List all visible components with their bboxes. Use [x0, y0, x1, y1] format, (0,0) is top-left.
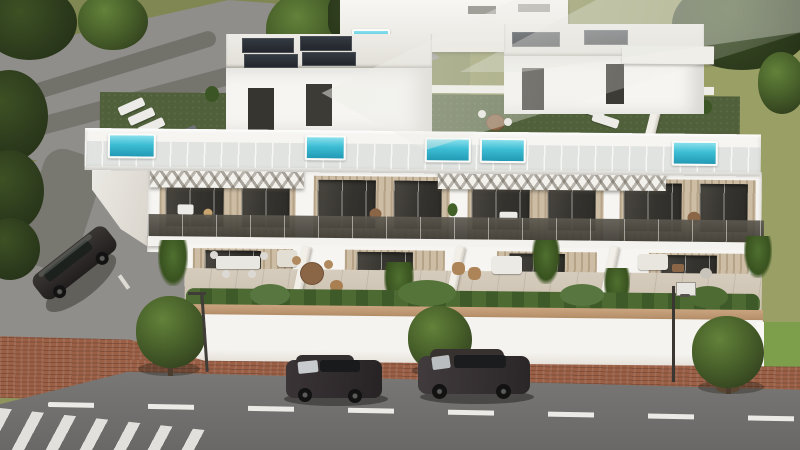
outdoor-sofa [492, 256, 522, 274]
car-wheel [348, 389, 362, 403]
dining-chair [292, 256, 301, 265]
street-tree [136, 296, 206, 368]
car-wheel [298, 388, 312, 402]
dining-chair [260, 252, 268, 260]
car-windshield [431, 355, 451, 370]
solar-panel [512, 32, 560, 47]
architectural-render-scene [0, 0, 800, 450]
stair-box-right [504, 24, 704, 114]
palm-plant [532, 240, 560, 284]
rooftop-pool [108, 133, 156, 158]
dining-table [216, 256, 260, 269]
basketball-ring [680, 294, 690, 297]
balcony-plant [447, 203, 457, 216]
car-windows [320, 360, 360, 372]
round-table [300, 262, 324, 285]
lamp-pole [672, 286, 675, 382]
stair-box-door [522, 68, 544, 110]
back-building-skylight [518, 4, 550, 12]
bush [250, 284, 290, 306]
dining-chair [222, 270, 230, 278]
rooftop-pool [672, 141, 718, 166]
solar-panel [300, 36, 352, 51]
rooftop-pool [305, 135, 346, 160]
palm-plant [158, 240, 188, 286]
back-building-skylight [468, 6, 496, 14]
dining-chair [210, 251, 218, 259]
dining-chair [248, 270, 256, 278]
solar-panel [242, 38, 294, 53]
roof-planter [205, 86, 219, 102]
outdoor-sofa [638, 254, 668, 270]
car-windshield [297, 360, 318, 374]
roof-parapet [85, 128, 761, 176]
car-windows [454, 355, 506, 368]
glass-railing [85, 141, 761, 172]
tree-canopy [758, 52, 800, 114]
stair-box-door [248, 88, 274, 134]
stair-box-door [306, 84, 332, 126]
dining-chair [324, 260, 333, 269]
suv-car [414, 346, 536, 408]
car-wheel [432, 384, 447, 399]
signal-pole-arm [188, 292, 206, 295]
roof-dining-table [486, 114, 505, 131]
stair-box-door [606, 64, 624, 104]
roof-chair [478, 110, 486, 118]
car-wheel [496, 384, 511, 399]
bush [398, 280, 456, 306]
solar-panel [244, 54, 298, 68]
wicker-chair [468, 267, 481, 280]
balcony-chair [177, 204, 193, 214]
street-tree [692, 316, 764, 388]
bush [560, 284, 604, 306]
hatchback-car [282, 352, 390, 410]
palm-plant [744, 236, 772, 278]
stair-box-left [226, 34, 432, 134]
wicker-chair [452, 262, 465, 275]
roof-chair [504, 118, 512, 126]
roof-slab-extension [622, 46, 714, 65]
solar-panel [302, 52, 356, 66]
solar-panel [584, 30, 628, 45]
rooftop-pool [425, 137, 471, 162]
rooftop-pool [480, 138, 526, 163]
wicker-chair [700, 268, 712, 279]
coffee-table [672, 264, 684, 272]
